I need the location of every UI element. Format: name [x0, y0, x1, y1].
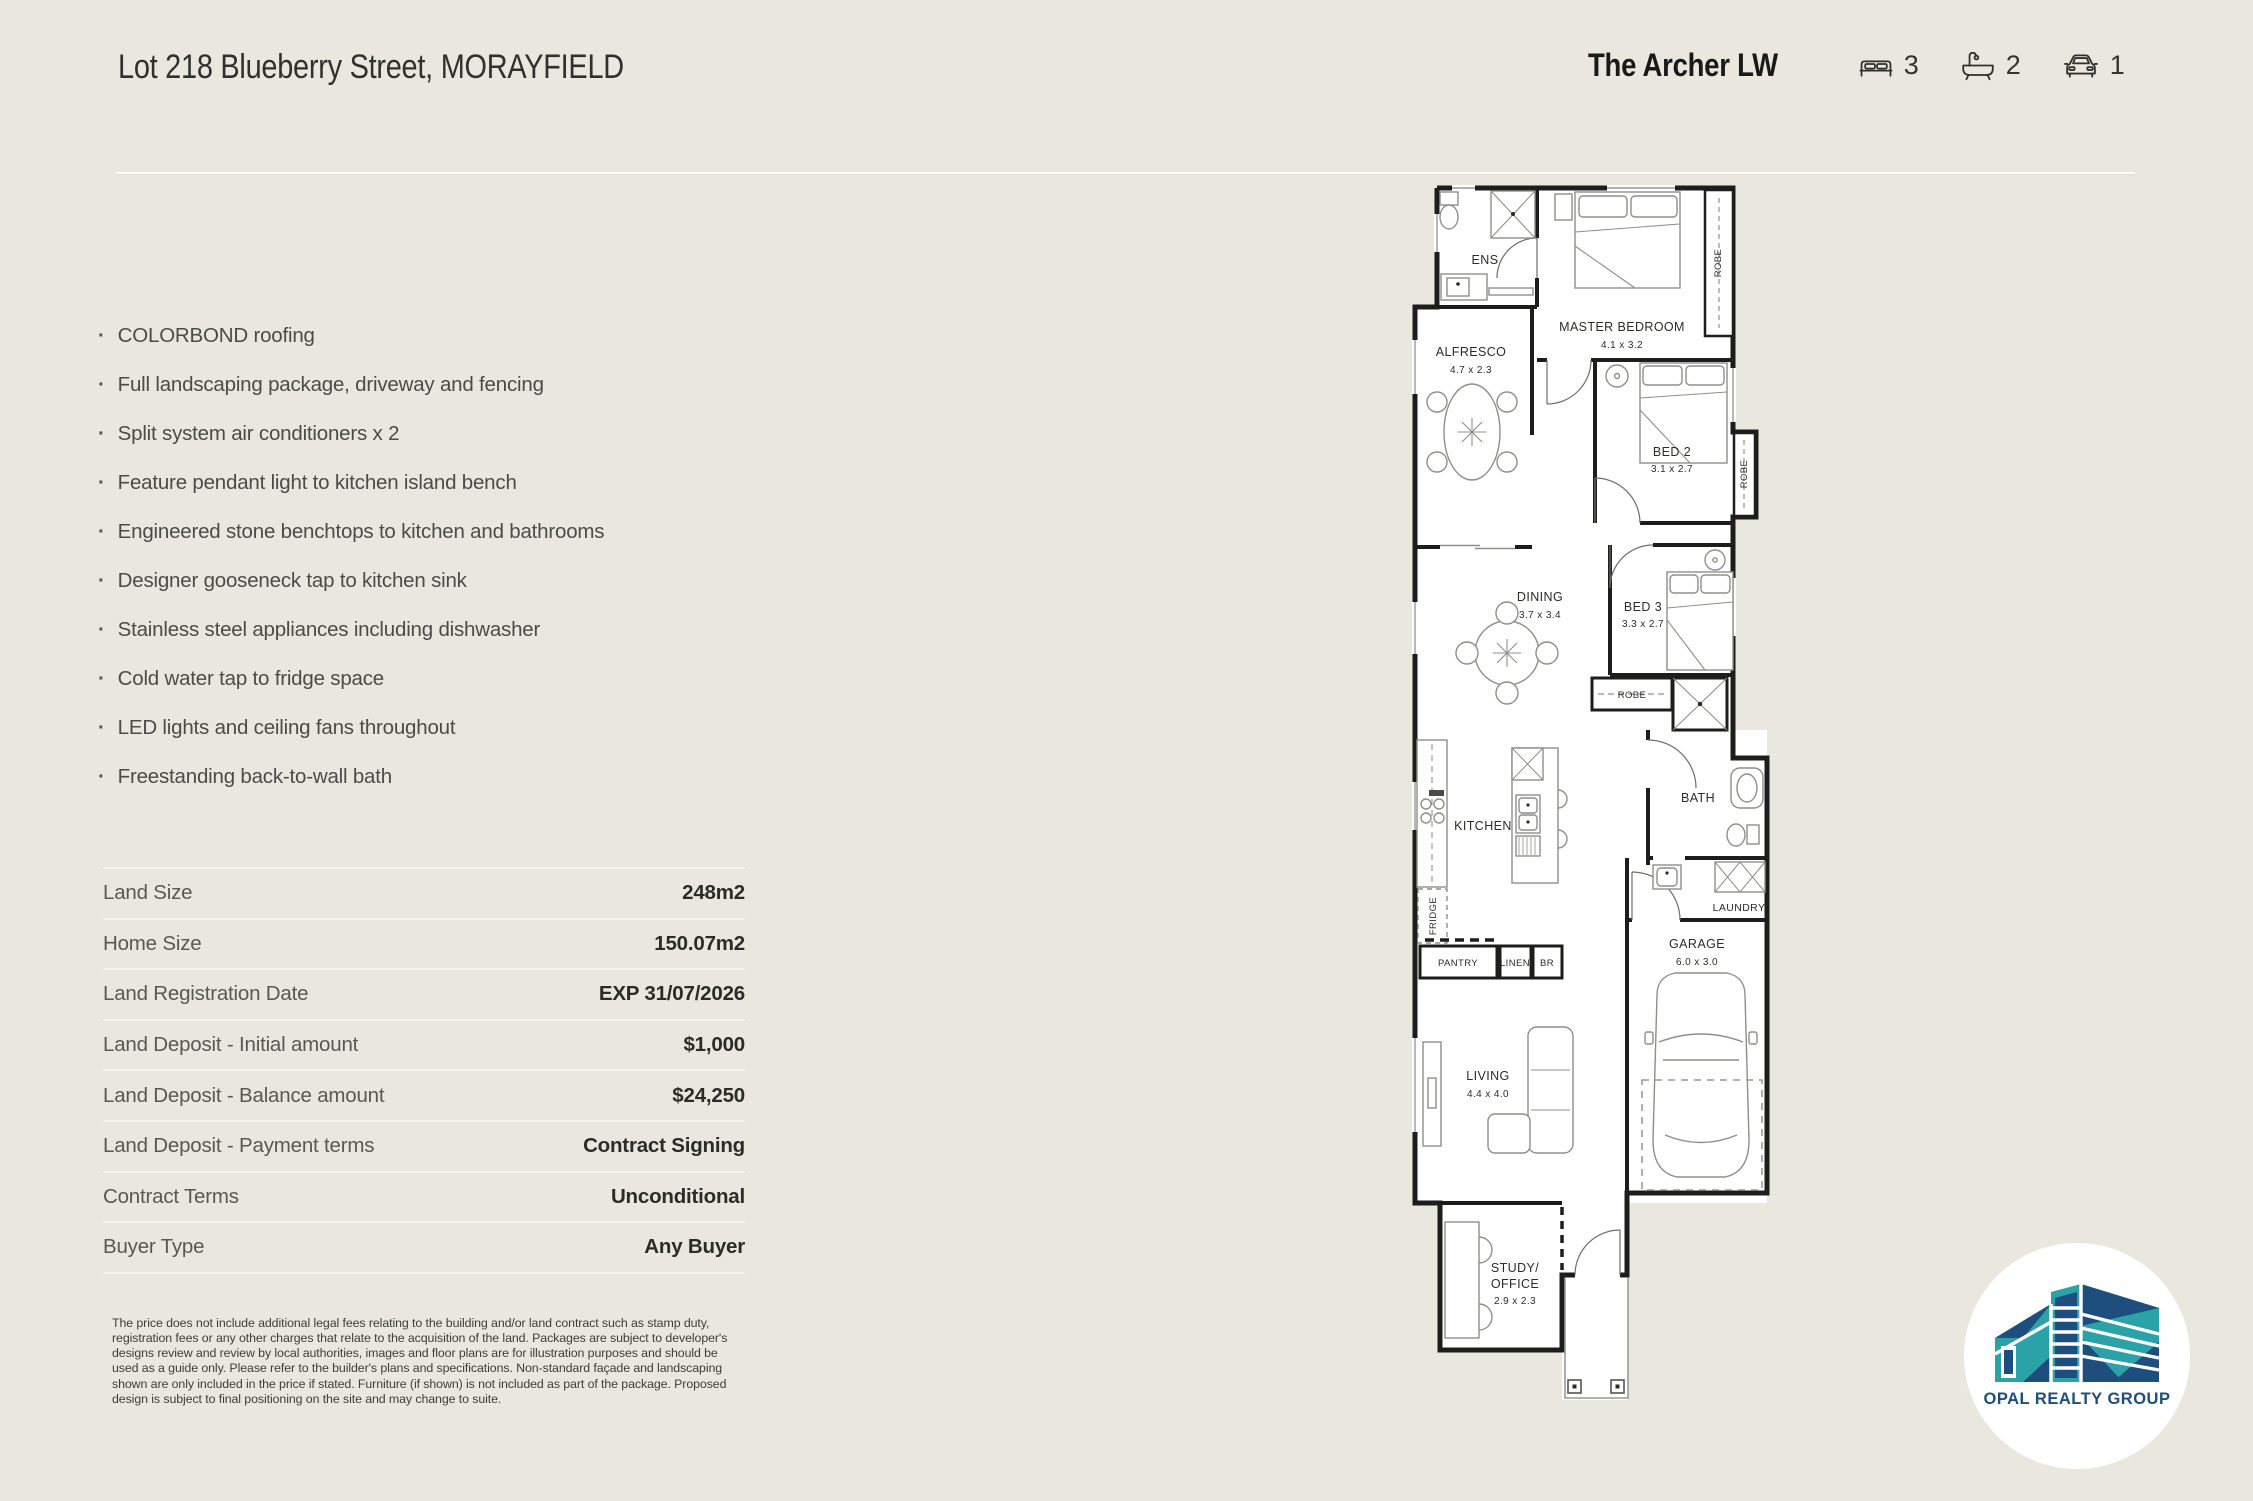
- bed2-robe: ROBE: [1734, 433, 1755, 516]
- room-label-living: LIVING: [1466, 1069, 1509, 1083]
- feature-item: Stainless steel appliances including dis…: [98, 605, 604, 654]
- row-value: Contract Signing: [583, 1134, 745, 1158]
- room-label-kitchen: KITCHEN: [1454, 819, 1512, 833]
- room-label-linen: LINEN: [1500, 958, 1530, 969]
- feature-item: Feature pendant light to kitchen island …: [98, 458, 604, 507]
- plan-name: The Archer LW: [1588, 47, 1778, 84]
- table-row: Contract TermsUnconditional: [103, 1171, 745, 1222]
- row-value: $1,000: [683, 1033, 745, 1057]
- room-label-laundry: LAUNDRY: [1713, 902, 1766, 914]
- feature-item: Full landscaping package, driveway and f…: [98, 360, 604, 409]
- row-value: 248m2: [682, 881, 745, 905]
- row-label: Land Deposit - Balance amount: [103, 1084, 384, 1108]
- pantry-row: PANTRY LINEN BR: [1420, 940, 1562, 978]
- room-label-br: BR: [1540, 958, 1554, 969]
- room-label-fridge: FRIDGE: [1428, 897, 1439, 935]
- hall-shower: [1673, 678, 1727, 730]
- sliding-door: [1440, 543, 1515, 551]
- room-label-study-1: STUDY/: [1491, 1261, 1539, 1275]
- hall-robe: ROBE: [1592, 678, 1672, 710]
- bath-count: 2: [2006, 50, 2021, 81]
- property-address: Lot 218 Blueberry Street, MORAYFIELD: [118, 48, 624, 87]
- floorplan: ROBE ROBE: [1395, 180, 1815, 1430]
- room-dims-study: 2.9 x 2.3: [1494, 1296, 1536, 1307]
- bed-count: 3: [1904, 50, 1919, 81]
- room-label-pantry: PANTRY: [1438, 958, 1478, 969]
- room-label-master: MASTER BEDROOM: [1559, 320, 1685, 334]
- room-label-bed2: BED 2: [1653, 445, 1691, 459]
- feature-item: Engineered stone benchtops to kitchen an…: [98, 507, 604, 556]
- row-label: Land Size: [103, 881, 192, 905]
- table-row: Land Registration DateEXP 31/07/2026: [103, 968, 745, 1019]
- row-label: Land Deposit - Initial amount: [103, 1033, 358, 1057]
- feature-item: LED lights and ceiling fans throughout: [98, 703, 604, 752]
- room-label-alfresco: ALFRESCO: [1436, 345, 1507, 359]
- features-list: COLORBOND roofing Full landscaping packa…: [98, 311, 604, 801]
- car-icon: [2061, 49, 2101, 81]
- room-label-bed3: BED 3: [1624, 600, 1662, 614]
- disclaimer-text: The price does not include additional le…: [112, 1316, 736, 1407]
- table-row: Land Deposit - Balance amount$24,250: [103, 1069, 745, 1120]
- row-label: Home Size: [103, 932, 201, 956]
- car-count: 1: [2110, 50, 2125, 81]
- agency-logo: OPAL REALTY GROUP: [1963, 1242, 2191, 1475]
- feature-item: Freestanding back-to-wall bath: [98, 752, 604, 801]
- plan-header: The Archer LW 3 2: [1588, 44, 2125, 86]
- row-value: $24,250: [672, 1084, 745, 1108]
- row-value: EXP 31/07/2026: [599, 982, 745, 1006]
- car-stat: 1: [2061, 49, 2125, 81]
- room-label-garage: GARAGE: [1669, 937, 1725, 951]
- feature-item: Split system air conditioners x 2: [98, 409, 604, 458]
- row-label: Land Deposit - Payment terms: [103, 1134, 374, 1158]
- table-row: Land Deposit - Payment termsContract Sig…: [103, 1120, 745, 1171]
- row-label: Land Registration Date: [103, 982, 308, 1006]
- table-row: Buyer TypeAny Buyer: [103, 1221, 745, 1272]
- row-label: Buyer Type: [103, 1235, 204, 1259]
- room-label-study-2: OFFICE: [1491, 1277, 1539, 1291]
- flyer-page: Lot 218 Blueberry Street, MORAYFIELD The…: [0, 0, 2253, 1501]
- feature-item: COLORBOND roofing: [98, 311, 604, 360]
- room-dims-bed3: 3.3 x 2.7: [1622, 619, 1664, 630]
- table-row: Land Deposit - Initial amount$1,000: [103, 1019, 745, 1070]
- room-label-robe-hall: ROBE: [1618, 690, 1647, 701]
- master-robe: ROBE: [1705, 190, 1733, 336]
- room-dims-master: 4.1 x 3.2: [1601, 340, 1643, 351]
- room-label-dining: DINING: [1517, 590, 1563, 604]
- room-label-robe-bed2: ROBE: [1739, 460, 1750, 489]
- bed-icon: [1857, 50, 1895, 81]
- logo-text: OPAL REALTY GROUP: [1984, 1390, 2171, 1408]
- row-label: Contract Terms: [103, 1185, 239, 1209]
- feature-item: Designer gooseneck tap to kitchen sink: [98, 556, 604, 605]
- header-divider: [117, 172, 2135, 175]
- room-label-ens: ENS: [1472, 253, 1499, 267]
- room-dims-dining: 3.7 x 3.4: [1519, 610, 1561, 621]
- bath-stat: 2: [1959, 49, 2021, 82]
- room-label-bath: BATH: [1681, 791, 1715, 805]
- room-dims-alfresco: 4.7 x 2.3: [1450, 365, 1492, 376]
- row-value: Any Buyer: [644, 1235, 745, 1259]
- room-dims-bed2: 3.1 x 2.7: [1651, 464, 1693, 475]
- bath-icon: [1959, 49, 1997, 82]
- details-table: Land Size248m2 Home Size150.07m2 Land Re…: [103, 867, 745, 1274]
- feature-item: Cold water tap to fridge space: [98, 654, 604, 703]
- room-dims-garage: 6.0 x 3.0: [1676, 957, 1718, 968]
- table-row: Land Size248m2: [103, 867, 745, 918]
- row-value: Unconditional: [611, 1185, 745, 1209]
- table-row: Home Size150.07m2: [103, 918, 745, 969]
- bed-stat: 3: [1857, 50, 1919, 81]
- row-value: 150.07m2: [654, 932, 745, 956]
- room-dims-living: 4.4 x 4.0: [1467, 1089, 1509, 1100]
- room-label-robe-master: ROBE: [1713, 249, 1724, 278]
